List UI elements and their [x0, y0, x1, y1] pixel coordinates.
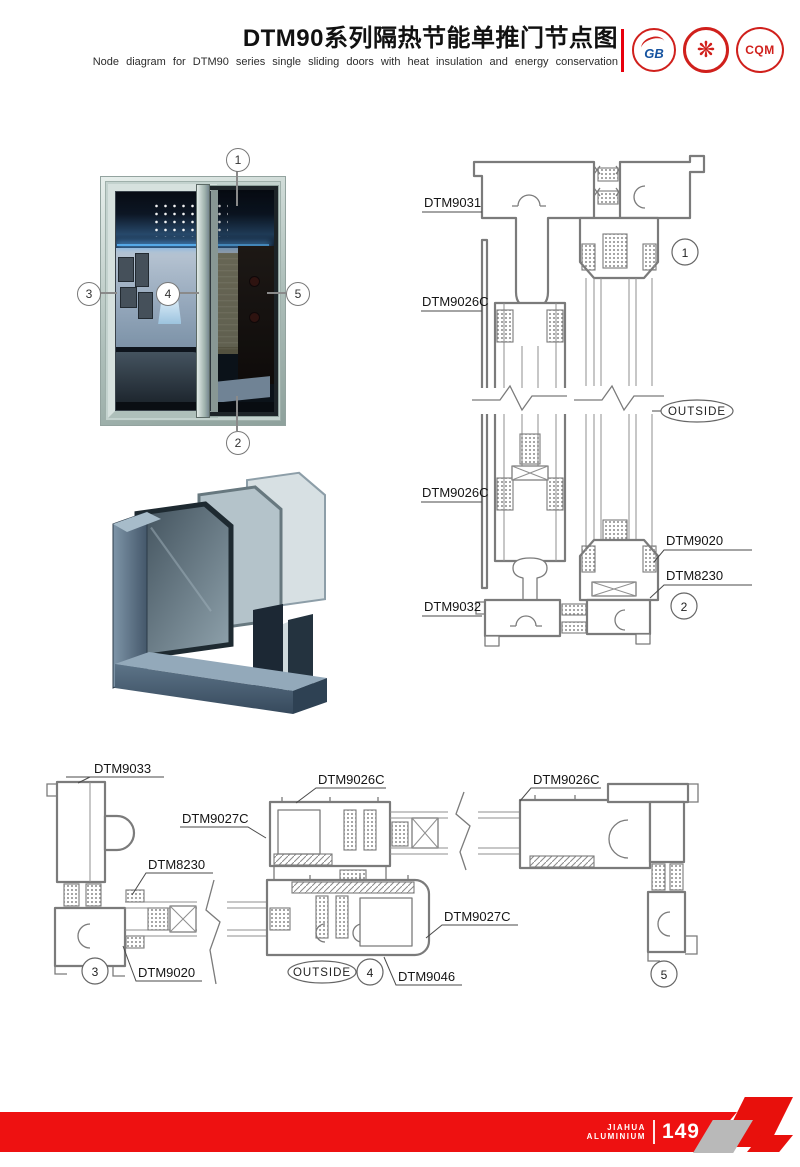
label-dtm9026c-lower: DTM9026C — [422, 485, 488, 500]
photo-callout-3: 3 — [77, 282, 101, 306]
label-dtm8230-v: DTM8230 — [666, 568, 723, 583]
svg-text:2: 2 — [681, 600, 688, 614]
label-dtm9026c-upper: DTM9026C — [422, 294, 488, 309]
horizontal-section-drawing: DTM9033 DTM9026C DTM9026C DTM9027C DTM82… — [30, 748, 730, 998]
label-dtm9033: DTM9033 — [94, 761, 151, 776]
profile-corner-3d-render — [85, 462, 330, 717]
page-number: 149 — [662, 1120, 700, 1144]
svg-text:1: 1 — [682, 246, 689, 260]
brand-name: JIAHUA ALUMINIUM — [587, 1123, 646, 1141]
cqm-logo-text: CQM — [745, 43, 775, 57]
footer-divider — [653, 1120, 655, 1144]
label-dtm8230-h: DTM8230 — [148, 857, 205, 872]
label-dtm9026c-left: DTM9026C — [318, 772, 384, 787]
door-photo — [100, 176, 286, 426]
svg-text:3: 3 — [92, 965, 99, 979]
outside-label-vertical: OUTSIDE — [668, 406, 726, 418]
emblem-icon: ❋ — [697, 39, 715, 61]
catalog-page: DTM90系列隔热节能单推门节点图 Node diagram for DTM90… — [0, 0, 800, 1167]
photo-callout-1: 1 — [226, 148, 250, 172]
photo-callout-2: 2 — [226, 431, 250, 455]
label-dtm9027c-lower: DTM9027C — [444, 909, 510, 924]
emblem-cert-logo: ❋ — [683, 27, 729, 73]
meeting-stile — [196, 184, 210, 418]
svg-text:4: 4 — [367, 966, 374, 980]
label-dtm9020-v: DTM9020 — [666, 533, 723, 548]
page-subtitle: Node diagram for DTM90 series single sli… — [93, 56, 618, 68]
fixed-panel — [200, 186, 278, 416]
certification-logos: GB ❋ CQM — [632, 27, 784, 73]
label-dtm9020-h: DTM9020 — [138, 965, 195, 980]
label-dtm9032: DTM9032 — [424, 599, 481, 614]
photo-callout-5: 5 — [286, 282, 310, 306]
label-dtm9031: DTM9031 — [424, 195, 481, 210]
cqm-cert-logo: CQM — [736, 27, 784, 73]
label-dtm9026c-right: DTM9026C — [533, 772, 599, 787]
gb-cert-logo: GB — [632, 28, 676, 72]
label-dtm9046: DTM9046 — [398, 969, 455, 984]
footer-brand: JIAHUA ALUMINIUM 149 — [520, 1112, 700, 1152]
svg-text:5: 5 — [661, 968, 668, 982]
vertical-section-drawing: OUTSIDE DTM9031 DTM9026C DTM9026C DTM903… — [420, 148, 770, 663]
page-header: DTM90系列隔热节能单推门节点图 Node diagram for DTM90… — [60, 24, 618, 68]
photo-callout-4: 4 — [156, 282, 180, 306]
title-accent-bar — [621, 29, 624, 72]
page-title: DTM90系列隔热节能单推门节点图 — [243, 24, 618, 54]
outside-label-horizontal: OUTSIDE — [293, 967, 351, 979]
label-dtm9027c-upper: DTM9027C — [182, 811, 248, 826]
